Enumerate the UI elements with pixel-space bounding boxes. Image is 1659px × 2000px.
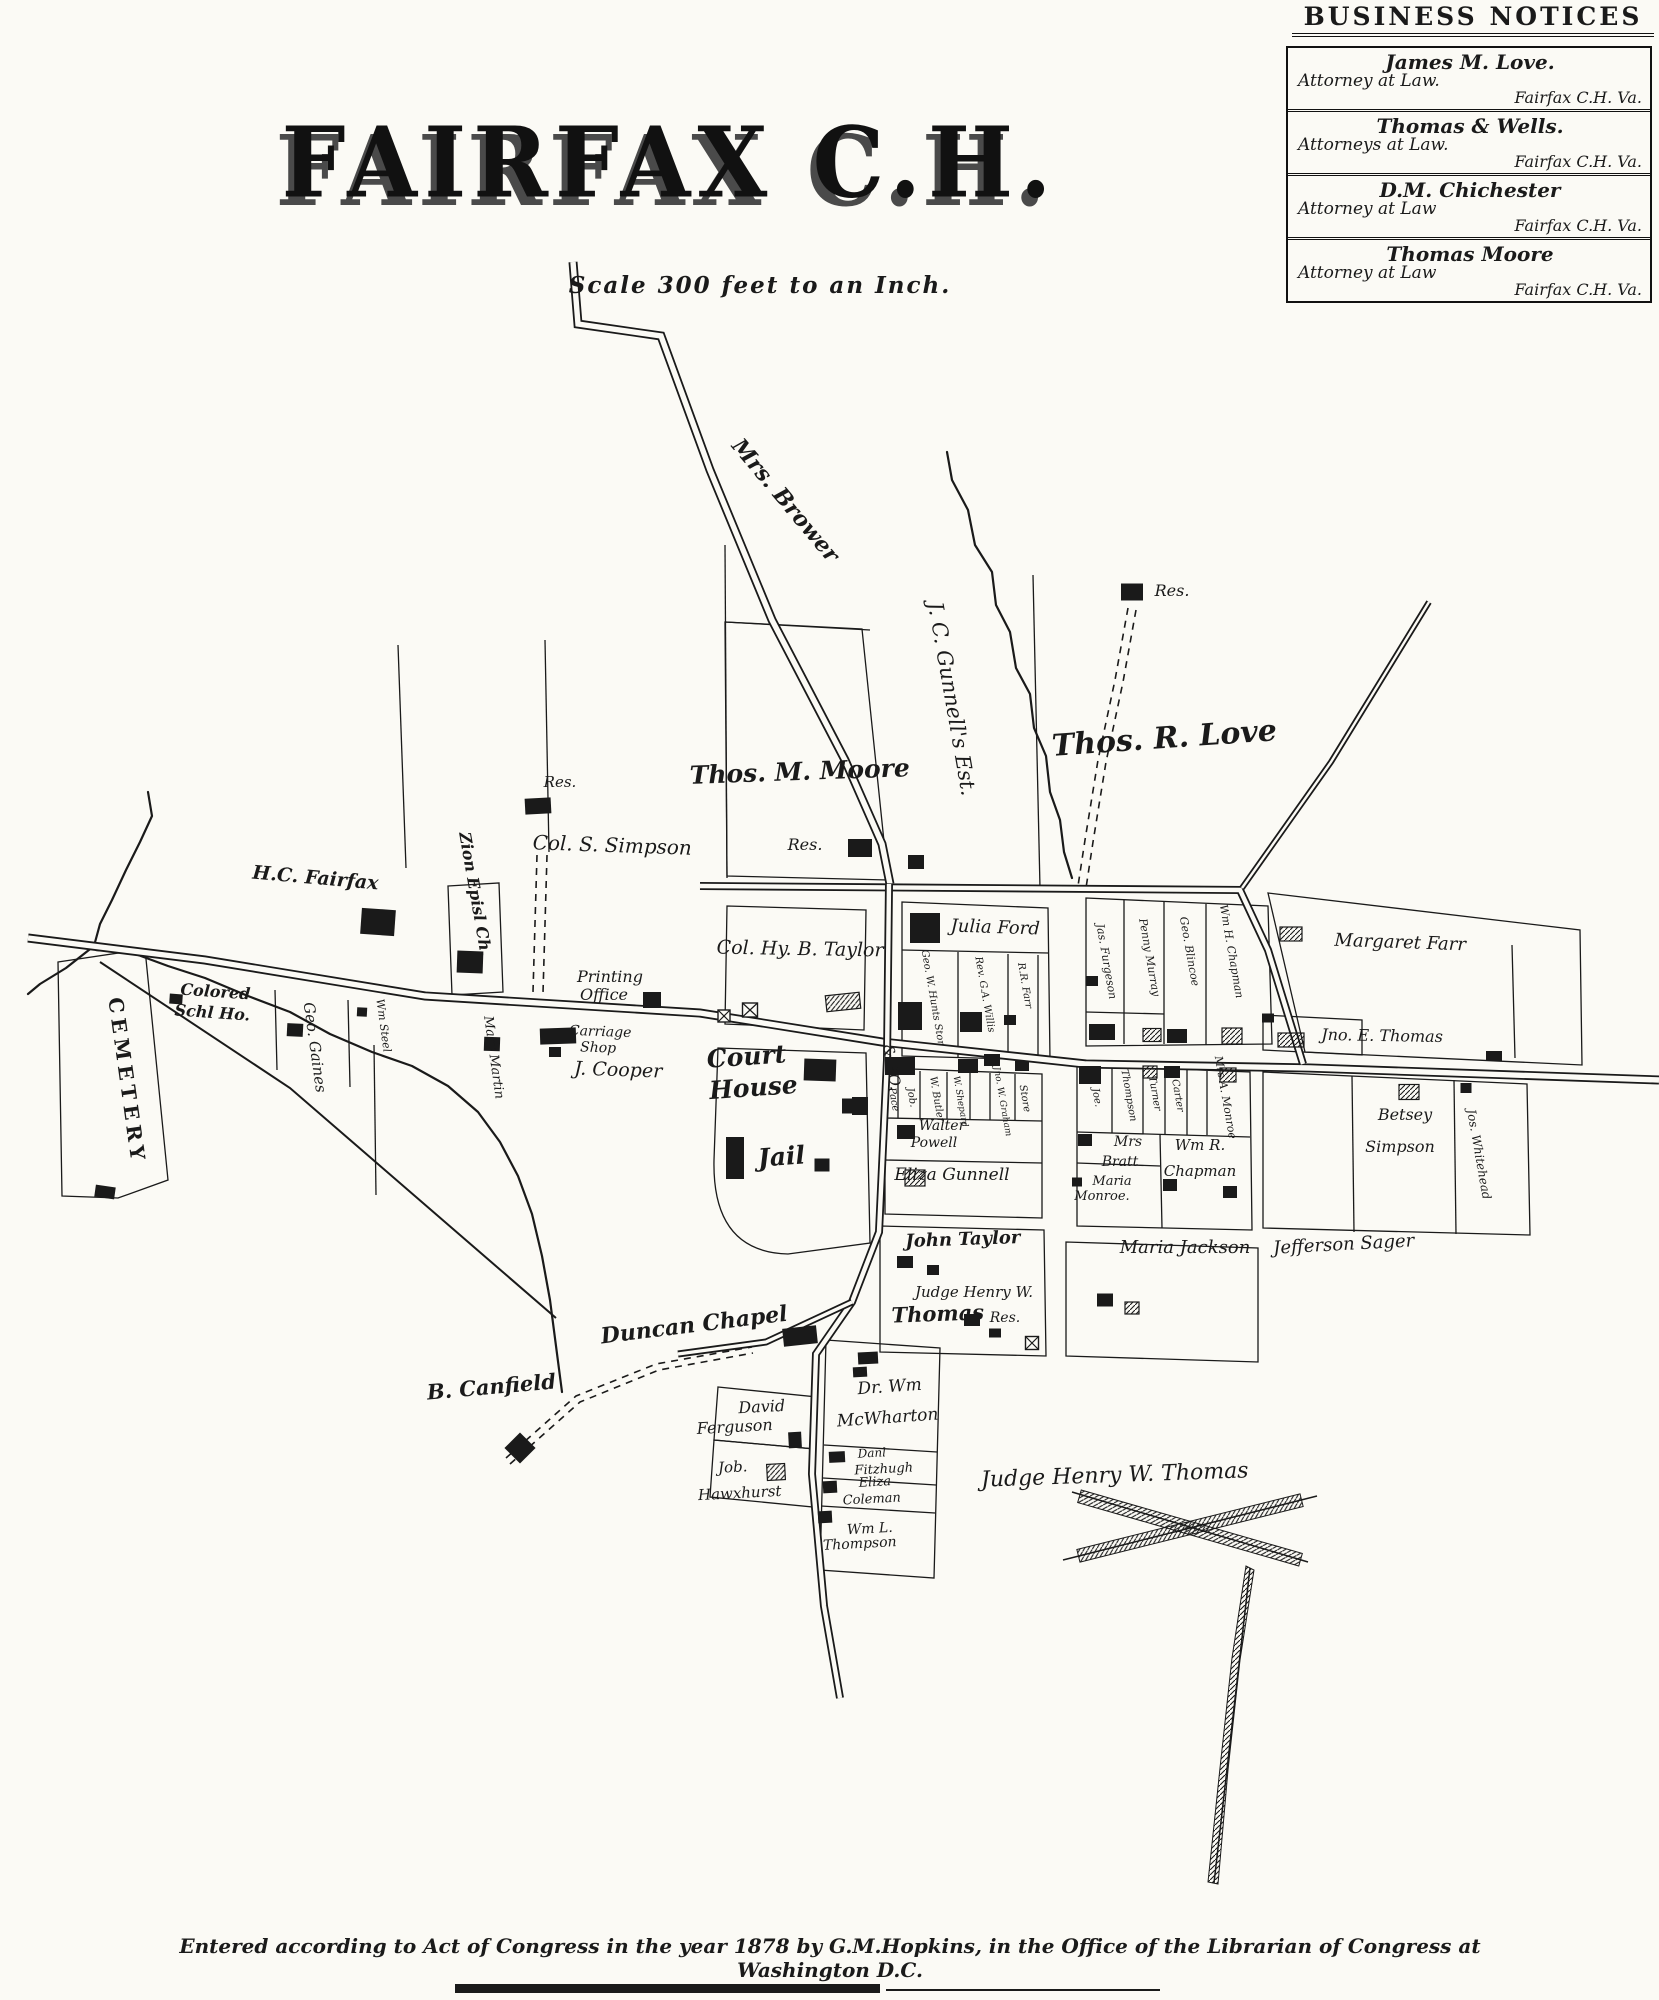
business-notices-box: James M. Love. Attorney at Law. Fairfax … (1286, 46, 1652, 303)
building (1461, 1083, 1472, 1093)
building (1222, 1028, 1242, 1044)
building (1089, 1024, 1115, 1040)
map-label: Chapman (1164, 1162, 1237, 1180)
map-label: Coleman (842, 1490, 901, 1508)
map-label: Simpson (1365, 1137, 1435, 1156)
building (1280, 927, 1302, 941)
notice-location: Fairfax C.H. Va. (1298, 282, 1642, 298)
building (357, 1007, 367, 1017)
business-notice: Thomas Moore Attorney at Law Fairfax C.H… (1288, 237, 1650, 301)
building (1004, 1015, 1016, 1025)
map-label: Jefferson Sager (1269, 1230, 1416, 1259)
road (573, 262, 890, 884)
building (1121, 584, 1143, 601)
building (927, 1265, 939, 1275)
building (1086, 976, 1098, 986)
building (852, 1097, 868, 1115)
map-label: Mrs (1113, 1134, 1142, 1150)
map-label: David (737, 1396, 786, 1417)
scale-note: Scale 300 feet to an Inch. (470, 272, 1050, 299)
parcel-boundary (1033, 575, 1040, 888)
map-label: Danl (856, 1445, 886, 1461)
map-label: Carriage (569, 1023, 632, 1041)
map-label: Maria Jackson (1119, 1237, 1251, 1258)
parcel-boundary (1066, 1242, 1258, 1362)
map-label: Court (706, 1039, 788, 1074)
map-label: Res. (989, 1310, 1020, 1326)
map-label: Ferguson (695, 1415, 773, 1438)
border-mark (455, 1984, 880, 1993)
dashed-lane (506, 1347, 752, 1458)
building (825, 992, 860, 1011)
building (804, 1058, 837, 1081)
map-label: Jno. E. Thomas (1318, 1025, 1443, 1046)
parcel-boundary (1160, 1134, 1162, 1228)
notice-location: Fairfax C.H. Va. (1298, 154, 1642, 170)
building (897, 1256, 913, 1268)
road-core (700, 886, 1303, 1064)
building (984, 1054, 1000, 1066)
map-label: Wm Steel (373, 998, 393, 1053)
map-label: Zion Episl Ch. (455, 830, 496, 958)
page-title: FAIRFAX C.H. (280, 106, 1060, 220)
map-label: Jail (753, 1140, 806, 1172)
building (908, 855, 924, 869)
notice-name: Thomas & Wells. (1298, 116, 1642, 136)
parcel-boundary (1454, 1080, 1456, 1234)
building (1167, 1029, 1187, 1043)
map-label: Jno. W. Graham (991, 1064, 1013, 1137)
map-label: Store (1017, 1084, 1033, 1113)
parcel-boundary (1512, 945, 1515, 1058)
map-label: Thompson (823, 1534, 897, 1554)
building (829, 1451, 846, 1463)
building (958, 1059, 978, 1073)
building (1399, 1085, 1419, 1100)
map-label: Turner (1146, 1075, 1163, 1113)
map-label: Col. S. Simpson (532, 830, 692, 860)
map-label: H.C. Fairfax (251, 861, 380, 894)
map-label: Thompson (1118, 1069, 1138, 1123)
building (767, 1464, 786, 1481)
map-label: Dr. Wm (856, 1375, 923, 1400)
notice-name: James M. Love. (1298, 52, 1642, 72)
road (700, 886, 1303, 1064)
map-label: Job. (715, 1457, 748, 1477)
stream (947, 452, 1072, 878)
map-label: Geo. Gaines (300, 1001, 331, 1094)
building (910, 913, 940, 943)
map-label: Colored (180, 980, 251, 1004)
map-label: McWharton (835, 1404, 939, 1431)
building (818, 1511, 833, 1524)
map-label: Margaret Farr (1333, 930, 1467, 956)
building (1262, 1014, 1274, 1023)
map-label: Col. Hy. B. Taylor (716, 937, 885, 962)
building (1078, 1134, 1092, 1146)
building (989, 1329, 1001, 1338)
map-label: Wm R. (1175, 1136, 1225, 1154)
map-label: Printing (576, 967, 643, 986)
map-label: B. Canfield (425, 1368, 557, 1404)
map-label: John Taylor (902, 1227, 1022, 1252)
map-label: J. C. Gunnell's Est. (922, 596, 980, 798)
parcel-boundary (1086, 1012, 1164, 1014)
dashed-lane (543, 855, 547, 993)
parcel-boundary (58, 949, 168, 1198)
building (1079, 1066, 1101, 1084)
building (1163, 1179, 1177, 1191)
map-label: R.R. Farr (1015, 961, 1034, 1011)
map-label: Carter (1169, 1078, 1186, 1114)
map-label: Maria (1091, 1174, 1131, 1189)
dashed-lane (533, 855, 537, 992)
map-label: Jos. Whitehead (1464, 1105, 1494, 1201)
building (549, 1047, 561, 1057)
building (525, 797, 552, 814)
map-label: Thomas (891, 1299, 985, 1327)
map-label: Eliza Gunnell (893, 1165, 1009, 1185)
building (1072, 1178, 1082, 1187)
map-label: Judge Henry W. Thomas (977, 1458, 1249, 1492)
building (788, 1432, 802, 1449)
map-label: Walter (919, 1118, 967, 1134)
building (1486, 1051, 1502, 1061)
map-label: Shop (580, 1039, 617, 1056)
map-label: Res. (787, 835, 823, 854)
business-notice: D.M. Chichester Attorney at Law Fairfax … (1288, 173, 1650, 237)
building (858, 1351, 879, 1364)
building (1015, 1061, 1029, 1071)
building (960, 1012, 982, 1032)
business-notice: Thomas & Wells. Attorneys at Law. Fairfa… (1288, 109, 1650, 173)
map-label: Julia Ford (946, 915, 1040, 939)
business-notice: James M. Love. Attorney at Law. Fairfax … (1288, 48, 1650, 109)
building (287, 1023, 304, 1037)
map-label: House (707, 1070, 798, 1105)
building (1164, 1066, 1180, 1078)
map-label: Wm H. Chapman (1217, 903, 1246, 999)
parcel-boundary (821, 1506, 935, 1513)
building (815, 1159, 830, 1172)
copyright-line: Entered according to Act of Congress in … (110, 1934, 1550, 1982)
parcel-boundary (275, 990, 277, 1070)
map-label: Thos. M. Moore (689, 753, 910, 790)
building (848, 839, 872, 857)
map-label: Office (580, 985, 628, 1004)
map-label: Res. (1154, 581, 1190, 600)
map-label: Res. (543, 773, 577, 791)
map-label: Monroe. (1073, 1189, 1129, 1204)
building (823, 1481, 838, 1494)
map-label: Judge Henry W. (912, 1283, 1033, 1301)
building (726, 1137, 744, 1179)
map-label: Geo. W. Hunts Stor (919, 949, 947, 1047)
map-label: Schl Ho. (174, 1000, 251, 1024)
map-label: Eliza (857, 1474, 891, 1491)
building (1143, 1029, 1161, 1042)
building (1125, 1302, 1139, 1314)
map-page: Mrs. BrowerJ. C. Gunnell's Est.Res.Thos.… (0, 0, 1659, 2000)
business-notices-header: BUSINESS NOTICES (1292, 2, 1654, 37)
parcel-boundary (398, 645, 406, 868)
map-label: Hawxhurst (697, 1482, 783, 1504)
map-label: Jas. Furgeson (1093, 921, 1119, 1001)
map-label: Mary Martin (480, 1014, 507, 1100)
map-label: Betsey (1377, 1105, 1433, 1124)
railroad-tail (1208, 1566, 1254, 1884)
building (360, 908, 396, 936)
building (782, 1325, 818, 1346)
building (1278, 1033, 1304, 1047)
building (1223, 1186, 1237, 1198)
map-label: Joe. (1089, 1085, 1104, 1108)
map-label: Powell (910, 1135, 958, 1151)
parcel-boundary (885, 1160, 1042, 1163)
road-core (573, 262, 890, 884)
notice-location: Fairfax C.H. Va. (1298, 90, 1642, 106)
building (898, 1002, 922, 1030)
building (504, 1432, 535, 1463)
parcel-boundary (545, 640, 549, 852)
building (1097, 1294, 1113, 1307)
building (643, 992, 661, 1008)
building (853, 1367, 868, 1378)
map-label: CEMETERY (103, 996, 150, 1167)
map-label: Bratt (1101, 1154, 1139, 1170)
parcel-boundary (374, 1045, 376, 1195)
map-label: Geo. Blincoe (1177, 916, 1202, 988)
stream (28, 792, 152, 994)
parcel-boundary (1352, 1076, 1354, 1232)
notice-name: D.M. Chichester (1298, 180, 1642, 200)
notice-location: Fairfax C.H. Va. (1298, 218, 1642, 234)
map-label: Thos. R. Love (1051, 713, 1278, 764)
map-label: Job. (904, 1085, 919, 1108)
notice-name: Thomas Moore (1298, 244, 1642, 264)
map-label: Penny Murray (1136, 916, 1163, 998)
map-label: J. Cooper (570, 1057, 665, 1082)
